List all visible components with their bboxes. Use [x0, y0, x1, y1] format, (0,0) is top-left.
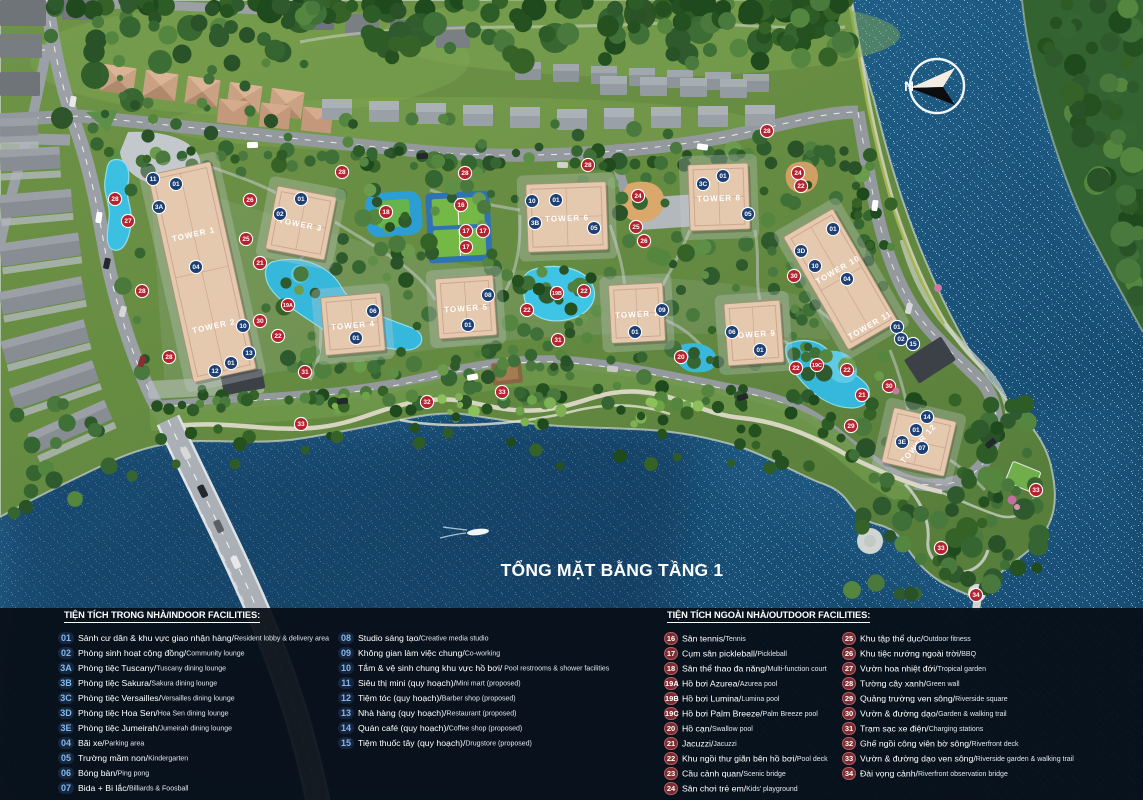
svg-text:28: 28 [138, 288, 146, 295]
svg-text:24: 24 [794, 170, 802, 177]
svg-text:28: 28 [338, 169, 346, 176]
svg-text:28: 28 [111, 196, 119, 203]
svg-text:02: 02 [276, 211, 284, 218]
svg-text:22: 22 [792, 365, 800, 372]
svg-text:32: 32 [423, 399, 431, 406]
svg-text:31: 31 [301, 369, 309, 376]
svg-text:21: 21 [858, 392, 866, 399]
svg-text:17: 17 [462, 228, 470, 235]
svg-text:01: 01 [352, 335, 360, 342]
svg-text:3D: 3D [797, 248, 806, 255]
svg-text:19C: 19C [812, 363, 822, 369]
svg-text:30: 30 [885, 383, 893, 390]
svg-text:13: 13 [245, 350, 253, 357]
svg-text:26: 26 [246, 197, 254, 204]
svg-text:18: 18 [382, 209, 390, 216]
svg-text:01: 01 [552, 197, 560, 204]
svg-text:01: 01 [719, 173, 727, 180]
svg-text:09: 09 [658, 307, 666, 314]
svg-text:06: 06 [369, 308, 377, 315]
svg-text:22: 22 [580, 288, 588, 295]
svg-text:3C: 3C [699, 181, 708, 188]
svg-text:01: 01 [893, 324, 901, 331]
svg-text:22: 22 [274, 333, 282, 340]
svg-text:30: 30 [256, 318, 264, 325]
svg-text:16: 16 [457, 202, 465, 209]
svg-text:TOWER 6: TOWER 6 [545, 213, 589, 224]
svg-text:01: 01 [912, 427, 920, 434]
svg-text:10: 10 [528, 198, 536, 205]
svg-text:20: 20 [677, 354, 685, 361]
svg-text:27: 27 [124, 218, 132, 225]
svg-text:29: 29 [847, 423, 855, 430]
svg-text:08: 08 [484, 292, 492, 299]
svg-text:19A: 19A [283, 303, 293, 309]
svg-text:01: 01 [829, 226, 837, 233]
svg-text:01: 01 [227, 360, 235, 367]
svg-text:31: 31 [554, 337, 562, 344]
svg-text:21: 21 [256, 260, 264, 267]
svg-text:33: 33 [498, 389, 506, 396]
svg-text:17: 17 [479, 228, 487, 235]
svg-text:12: 12 [211, 368, 219, 375]
svg-text:06: 06 [728, 329, 736, 336]
svg-text:25: 25 [242, 236, 250, 243]
svg-text:N: N [904, 79, 914, 94]
svg-text:05: 05 [590, 225, 598, 232]
svg-text:22: 22 [797, 183, 805, 190]
svg-text:28: 28 [165, 354, 173, 361]
svg-text:3A: 3A [155, 204, 164, 211]
svg-text:01: 01 [631, 329, 639, 336]
svg-text:01: 01 [464, 322, 472, 329]
svg-text:19B: 19B [552, 291, 562, 297]
svg-text:34: 34 [972, 592, 980, 599]
svg-text:24: 24 [634, 193, 642, 200]
svg-text:05: 05 [744, 211, 752, 218]
svg-text:17: 17 [462, 244, 470, 251]
svg-text:25: 25 [632, 224, 640, 231]
svg-text:33: 33 [297, 421, 305, 428]
svg-text:01: 01 [756, 347, 764, 354]
svg-text:3B: 3B [531, 220, 540, 227]
svg-text:TOWER 8: TOWER 8 [697, 193, 741, 204]
svg-text:22: 22 [523, 307, 531, 314]
svg-text:02: 02 [897, 336, 905, 343]
svg-text:28: 28 [584, 162, 592, 169]
svg-text:01: 01 [172, 181, 180, 188]
svg-text:26: 26 [640, 238, 648, 245]
svg-text:28: 28 [763, 128, 771, 135]
svg-text:04: 04 [843, 276, 851, 283]
svg-text:30: 30 [790, 273, 798, 280]
svg-text:15: 15 [909, 341, 917, 348]
svg-text:10: 10 [811, 263, 819, 270]
svg-text:01: 01 [297, 196, 305, 203]
svg-text:07: 07 [918, 445, 926, 452]
svg-text:11: 11 [150, 176, 157, 183]
svg-text:3E: 3E [898, 439, 907, 446]
svg-text:14: 14 [923, 414, 931, 421]
svg-text:04: 04 [192, 264, 200, 271]
svg-text:33: 33 [937, 545, 945, 552]
svg-text:10: 10 [239, 323, 247, 330]
svg-text:22: 22 [843, 367, 851, 374]
svg-text:28: 28 [461, 170, 469, 177]
svg-text:33: 33 [1032, 487, 1040, 494]
